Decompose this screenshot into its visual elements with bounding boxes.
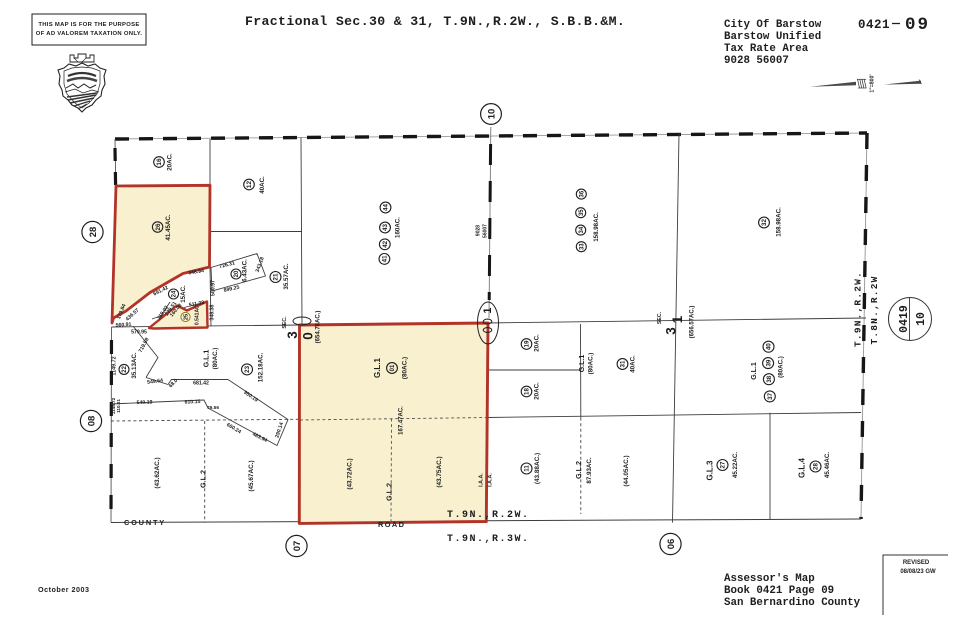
svg-text:20AC.: 20AC. xyxy=(167,153,174,171)
svg-text:SEC.: SEC. xyxy=(657,311,663,324)
svg-text:22: 22 xyxy=(122,365,128,372)
svg-text:(80AC.): (80AC.) xyxy=(588,353,595,375)
svg-text:10: 10 xyxy=(915,312,928,326)
svg-text:24: 24 xyxy=(172,290,178,297)
svg-text:1: 1 xyxy=(482,307,494,313)
svg-text:G.L.2: G.L.2 xyxy=(574,461,583,479)
svg-text:500.97: 500.97 xyxy=(211,280,217,296)
svg-text:City Of Barstow: City Of Barstow xyxy=(724,19,822,31)
svg-text:45.46AC.: 45.46AC. xyxy=(824,452,831,478)
svg-text:348.38: 348.38 xyxy=(210,304,216,320)
svg-text:158.98AC.: 158.98AC. xyxy=(776,207,783,237)
svg-text:(45.67AC.): (45.67AC.) xyxy=(248,460,255,491)
svg-text:1149.72: 1149.72 xyxy=(111,356,117,375)
svg-text:31: 31 xyxy=(620,360,627,367)
svg-text:44: 44 xyxy=(383,204,390,211)
svg-text:Assessor's Map: Assessor's Map xyxy=(724,573,815,585)
svg-text:10: 10 xyxy=(486,109,497,120)
svg-text:T.9N.,R.3W.: T.9N.,R.3W. xyxy=(447,534,530,545)
svg-text:16: 16 xyxy=(156,158,163,166)
svg-text:COUNTY: COUNTY xyxy=(124,518,166,527)
svg-text:40AC.: 40AC. xyxy=(259,176,266,194)
svg-text:23: 23 xyxy=(244,365,251,372)
svg-text:40AC.: 40AC. xyxy=(630,355,637,373)
svg-text:G.L.3: G.L.3 xyxy=(705,460,714,481)
svg-text:20: 20 xyxy=(234,270,240,277)
svg-text:ROAD: ROAD xyxy=(378,520,405,529)
svg-text:G.L.2: G.L.2 xyxy=(385,483,394,501)
svg-text:15AC.: 15AC. xyxy=(180,285,187,303)
svg-text:579.95: 579.95 xyxy=(131,329,147,335)
svg-text:(43.75AC.): (43.75AC.) xyxy=(436,456,443,487)
svg-text:October 2003: October 2003 xyxy=(38,585,90,594)
svg-text:35.13AC.: 35.13AC. xyxy=(131,352,138,378)
svg-text:20AC.: 20AC. xyxy=(534,334,541,352)
svg-text:25: 25 xyxy=(183,314,189,320)
svg-text:G.L.1: G.L.1 xyxy=(203,350,210,368)
svg-text:160AC.: 160AC. xyxy=(395,217,402,238)
svg-text:(43.88AC.): (43.88AC.) xyxy=(534,453,541,484)
svg-text:9028: 9028 xyxy=(475,225,481,236)
svg-text:610.15: 610.15 xyxy=(184,399,200,406)
svg-text:0419: 0419 xyxy=(898,305,911,333)
svg-text:35.57AC.: 35.57AC. xyxy=(283,263,290,289)
svg-text:18: 18 xyxy=(524,388,531,395)
svg-text:THIS MAP IS FOR THE PURPOSE: THIS MAP IS FOR THE PURPOSE xyxy=(38,22,139,28)
svg-text:37: 37 xyxy=(767,392,774,399)
svg-text:OF AD VALOREM TAXATION ONLY.: OF AD VALOREM TAXATION ONLY. xyxy=(36,31,143,37)
svg-text:28: 28 xyxy=(88,227,99,238)
svg-text:0421: 0421 xyxy=(858,18,890,32)
svg-text:(43.72AC.): (43.72AC.) xyxy=(347,458,354,489)
svg-text:G.L.1: G.L.1 xyxy=(751,362,758,380)
svg-text:158.98AC.: 158.98AC. xyxy=(593,212,600,242)
svg-text:540.19: 540.19 xyxy=(136,400,152,407)
svg-text:(80AC.): (80AC.) xyxy=(402,357,409,379)
svg-text:(80AC.): (80AC.) xyxy=(778,356,785,378)
svg-text:40: 40 xyxy=(766,343,773,350)
svg-text:T.8N.,R.2W: T.8N.,R.2W xyxy=(869,275,880,344)
svg-text:39: 39 xyxy=(765,359,772,366)
svg-text:32: 32 xyxy=(761,219,768,226)
svg-text:1: 1 xyxy=(670,315,685,323)
svg-text:21: 21 xyxy=(273,273,280,281)
svg-text:41: 41 xyxy=(382,255,389,262)
svg-text:19: 19 xyxy=(524,340,531,347)
svg-text:(654.78AC.): (654.78AC.) xyxy=(316,311,322,344)
svg-text:35: 35 xyxy=(579,209,585,216)
svg-text:1"=800': 1"=800' xyxy=(869,74,875,92)
svg-text:08: 08 xyxy=(86,416,97,427)
svg-text:12: 12 xyxy=(246,181,253,189)
svg-text:SEC.: SEC. xyxy=(282,316,288,329)
svg-text:110.01: 110.01 xyxy=(116,399,121,413)
svg-text:I.A.A.: I.A.A. xyxy=(478,473,484,487)
svg-text:3: 3 xyxy=(285,331,300,339)
svg-text:(44.05AC.): (44.05AC.) xyxy=(623,455,630,486)
svg-text:I.A.A.: I.A.A. xyxy=(488,473,494,487)
svg-text:06: 06 xyxy=(666,539,677,550)
svg-text:(656.57AC.): (656.57AC.) xyxy=(690,306,696,339)
svg-text:(43.62AC.): (43.62AC.) xyxy=(154,457,161,488)
svg-text:08/08/23 GW: 08/08/23 GW xyxy=(900,569,936,575)
svg-text:43: 43 xyxy=(382,224,389,231)
svg-text:38: 38 xyxy=(766,375,773,382)
svg-text:(80AC.): (80AC.) xyxy=(212,348,219,370)
svg-text:3: 3 xyxy=(664,327,679,335)
svg-text:San Bernardino County: San Bernardino County xyxy=(724,597,861,609)
svg-text:34: 34 xyxy=(579,226,585,233)
svg-text:681.42: 681.42 xyxy=(193,380,209,386)
svg-text:56007: 56007 xyxy=(482,224,488,238)
svg-text:6.43AC.: 6.43AC. xyxy=(242,259,249,282)
svg-text:42: 42 xyxy=(382,240,389,247)
svg-text:41.45AC.: 41.45AC. xyxy=(165,214,172,240)
svg-text:20AC.: 20AC. xyxy=(534,382,541,400)
svg-text:G.L.1: G.L.1 xyxy=(579,355,586,373)
svg-text:36: 36 xyxy=(579,190,585,197)
svg-text:28: 28 xyxy=(813,463,820,470)
svg-text:REVISED: REVISED xyxy=(903,560,930,566)
svg-text:167.47AC.: 167.47AC. xyxy=(399,406,405,435)
svg-text:G.L.4: G.L.4 xyxy=(797,457,806,478)
svg-text:33: 33 xyxy=(579,243,585,250)
svg-text:01: 01 xyxy=(390,364,396,371)
svg-text:87.93AC.: 87.93AC. xyxy=(586,457,593,483)
svg-text:26: 26 xyxy=(155,223,162,230)
svg-text:Book 0421 Page 09: Book 0421 Page 09 xyxy=(724,585,834,597)
svg-text:T.9N.,R.2W.: T.9N.,R.2W. xyxy=(447,510,530,521)
svg-text:0: 0 xyxy=(301,332,316,340)
svg-text:Barstow Unified: Barstow Unified xyxy=(724,31,821,43)
svg-text:G.L.1: G.L.1 xyxy=(373,357,382,378)
svg-text:152.18AC.: 152.18AC. xyxy=(258,352,265,382)
svg-text:T.9N.,R.2W.: T.9N.,R.2W. xyxy=(852,271,863,347)
svg-text:Tax Rate Area: Tax Rate Area xyxy=(724,43,809,55)
svg-text:27: 27 xyxy=(720,461,727,468)
svg-text:09: 09 xyxy=(905,15,930,35)
svg-text:07: 07 xyxy=(292,541,303,552)
svg-text:45.22AC.: 45.22AC. xyxy=(732,452,739,478)
svg-text:9028 56007: 9028 56007 xyxy=(724,55,789,67)
svg-text:79.56: 79.56 xyxy=(207,405,219,411)
svg-text:560.91: 560.91 xyxy=(115,322,131,329)
svg-text:11: 11 xyxy=(524,465,531,472)
svg-text:Fractional Sec.30 & 31, T.9N.,: Fractional Sec.30 & 31, T.9N.,R.2W., S.B… xyxy=(245,14,625,29)
svg-text:G.L.2: G.L.2 xyxy=(199,470,208,488)
